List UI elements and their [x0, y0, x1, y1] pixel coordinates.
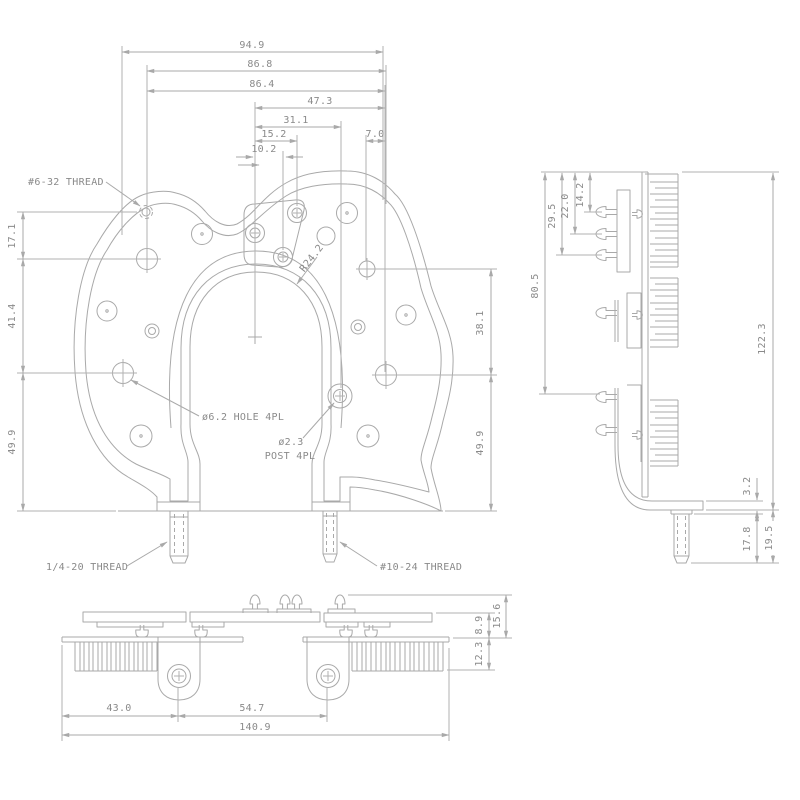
- carrier-top: [617, 190, 630, 272]
- hole-plain: [317, 227, 335, 245]
- hole-dot: [130, 425, 152, 447]
- hole-dot: [97, 301, 117, 321]
- front-dims-right: 38.1 49.9: [378, 269, 497, 511]
- dim-22-0: 22.0: [560, 193, 571, 218]
- side-post: [596, 308, 617, 319]
- dim-29-5: 29.5: [547, 203, 558, 228]
- post-2-3: [328, 384, 352, 408]
- dim-7-0: 7.0: [366, 129, 385, 140]
- bottom-post: [280, 595, 290, 609]
- front-inner-profile: [85, 184, 441, 501]
- carrier-bottom: [627, 385, 641, 462]
- dim-94-9: 94.9: [239, 40, 264, 51]
- plate-right: [324, 613, 432, 622]
- hole-crosshair: [356, 258, 378, 280]
- hole-dot: [192, 224, 213, 245]
- hole-crosshair: [109, 359, 137, 387]
- base-plate-left: [62, 637, 243, 642]
- dim-54-7: 54.7: [239, 703, 264, 714]
- bottom-view: 43.0 54.7 140.9 15.6 8.9 12.3: [62, 595, 512, 741]
- dim-49-9-left: 49.9: [7, 429, 18, 454]
- dim-3-2: 3.2: [742, 477, 753, 496]
- side-post: [596, 425, 617, 436]
- side-pin: [632, 210, 642, 218]
- carrier-middle: [627, 293, 641, 348]
- label-stud-quarter20: 1/4-20 THREAD: [46, 562, 128, 573]
- side-dims-right: 122.3 3.2 17.8 19.5: [682, 172, 779, 563]
- front-left-stud: [170, 511, 188, 563]
- dim-80-5: 80.5: [530, 273, 541, 298]
- hole-ring: [351, 320, 365, 334]
- dim-140-9: 140.9: [239, 722, 271, 733]
- dim-14-2: 14.2: [575, 182, 586, 207]
- side-post: [596, 392, 617, 403]
- dim-86-8: 86.8: [247, 59, 272, 70]
- label-hole-6-2: ø6.2 HOLE 4PL: [202, 412, 284, 423]
- center-mark: [248, 330, 262, 344]
- hole-crosshair: [372, 361, 400, 389]
- label-post-qty: POST 4PL: [265, 451, 316, 462]
- label-stud-10-24: #10-24 THREAD: [380, 562, 462, 573]
- hole-dot: [337, 203, 358, 224]
- side-geometry: [596, 172, 703, 563]
- plate-center: [190, 612, 320, 622]
- dim-12-3: 12.3: [474, 641, 485, 666]
- front-outer-profile: [74, 171, 453, 511]
- label-thread-6-32: #6-32 THREAD: [28, 177, 104, 188]
- dim-19-5: 19.5: [764, 525, 775, 550]
- front-view: 94.9 86.8 86.4 47.3 31.1 15.2 10.2 7.0 1…: [7, 40, 497, 573]
- dim-47-3: 47.3: [307, 96, 332, 107]
- plate-left: [83, 612, 186, 622]
- side-dims-left: 80.5 29.5 22.0 14.2: [530, 172, 645, 394]
- dim-31-1: 31.1: [283, 115, 308, 126]
- fin-block-top: [645, 174, 678, 267]
- dim-17-1: 17.1: [7, 223, 18, 248]
- dim-15-6: 15.6: [492, 603, 503, 628]
- dim-86-4: 86.4: [249, 79, 274, 90]
- pad-post: [274, 248, 293, 267]
- side-view: 80.5 29.5 22.0 14.2 122.3 3.2 17.8 19.5: [530, 172, 779, 563]
- front-dims-left: 17.1 41.4 49.9: [7, 212, 137, 511]
- dim-10-2: 10.2: [251, 144, 276, 155]
- dim-17-8: 17.8: [742, 526, 753, 551]
- bottom-post: [292, 595, 302, 609]
- hole-dot: [396, 305, 416, 325]
- bottom-fins-right: [352, 642, 443, 671]
- dim-122-3: 122.3: [757, 323, 768, 355]
- front-holes: [97, 203, 416, 448]
- dim-15-2: 15.2: [261, 129, 286, 140]
- front-right-stud: [323, 511, 337, 562]
- hole-dot: [357, 425, 379, 447]
- cad-drawing: 94.9 86.8 86.4 47.3 31.1 15.2 10.2 7.0 1…: [0, 0, 800, 800]
- bottom-fins-left: [75, 642, 157, 671]
- hole-ring: [145, 324, 159, 338]
- dim-43-0: 43.0: [106, 703, 131, 714]
- dim-38-1: 38.1: [475, 310, 486, 335]
- bottom-geometry: [62, 595, 449, 700]
- bottom-post: [335, 595, 345, 609]
- front-outline: [74, 171, 453, 511]
- dim-49-9-right: 49.9: [475, 430, 486, 455]
- side-stud: [671, 510, 692, 563]
- label-radius: R24.2: [298, 243, 326, 275]
- dim-8-9: 8.9: [474, 616, 485, 635]
- drawing-canvas: 94.9 86.8 86.4 47.3 31.1 15.2 10.2 7.0 1…: [0, 0, 800, 800]
- label-post-dia: ø2.3: [278, 437, 303, 448]
- horseshoe-boss-arc: [169, 251, 342, 428]
- base-plate-right: [303, 637, 449, 642]
- mount-pad: [244, 200, 304, 267]
- dim-41-4: 41.4: [7, 303, 18, 328]
- fin-block-bottom: [650, 400, 678, 466]
- fin-block-middle: [650, 278, 678, 347]
- bottom-post: [250, 595, 260, 609]
